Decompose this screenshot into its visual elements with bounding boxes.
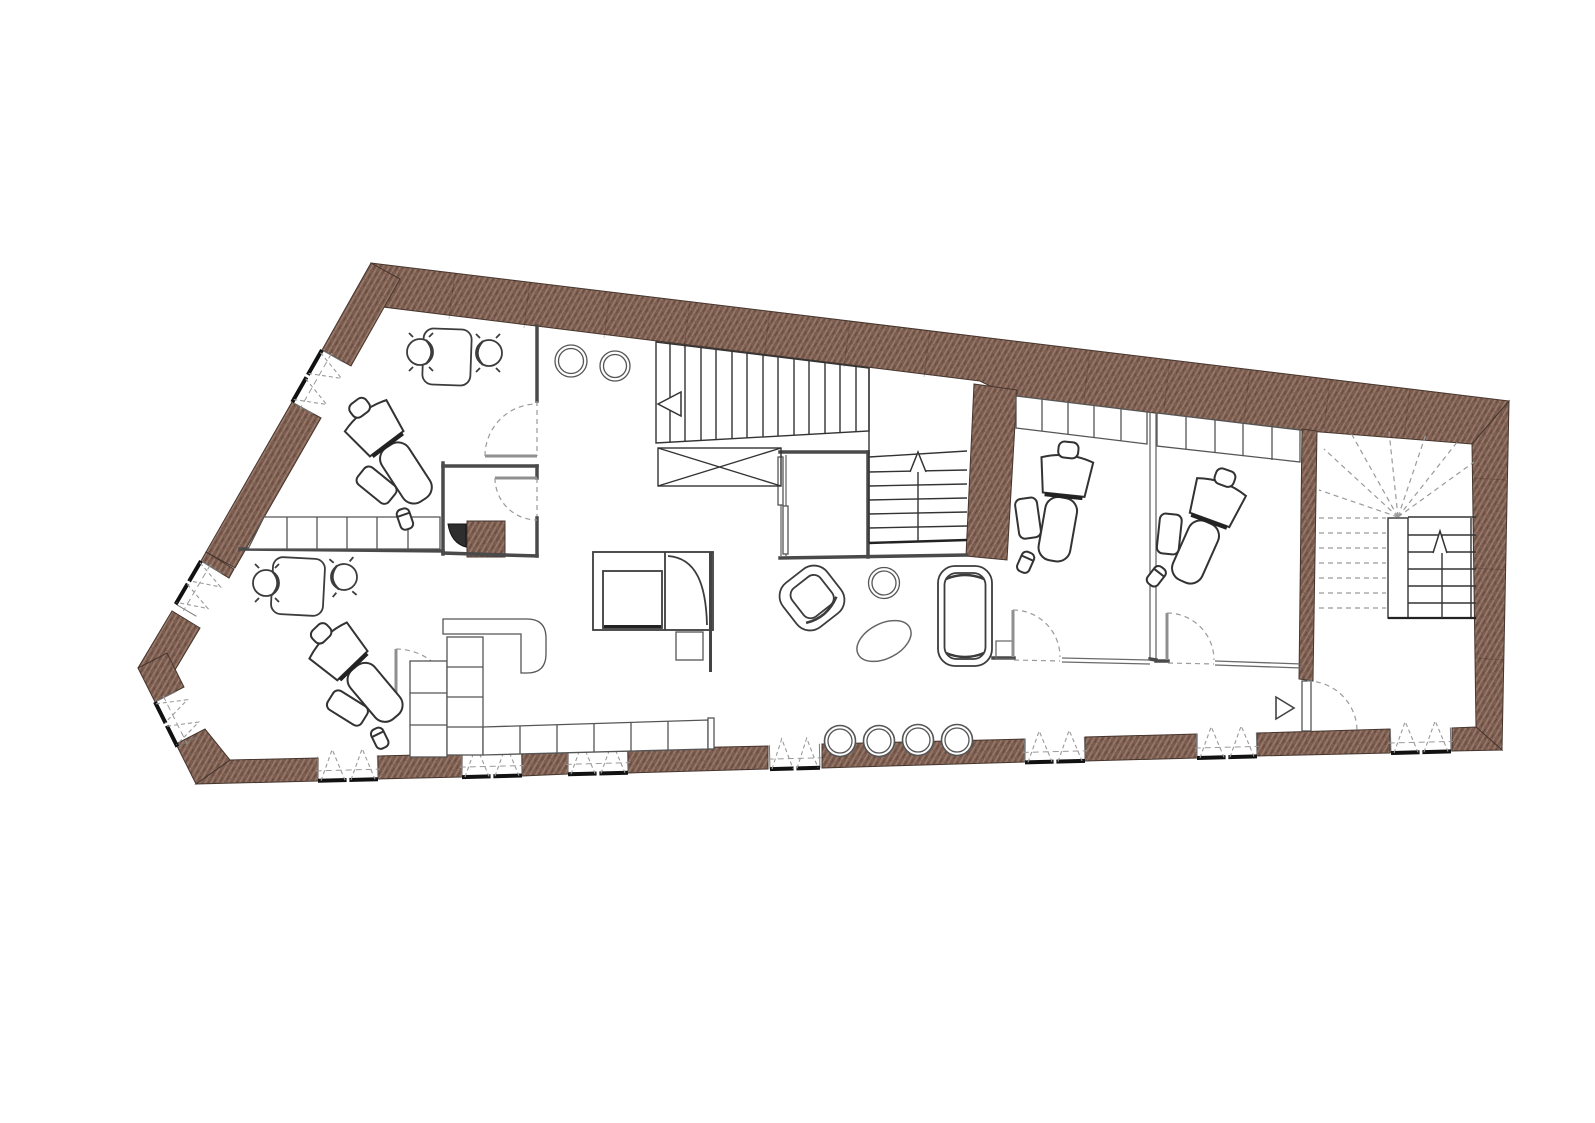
dental-chair [281, 610, 429, 760]
wall-north [371, 263, 1509, 444]
dental-chair [1007, 437, 1095, 580]
wall-northwest-1 [322, 263, 400, 366]
play-booth [593, 552, 713, 672]
cabinet-run-south [483, 718, 714, 755]
wall-stairroom-west [1299, 429, 1317, 681]
closet-door-panel [783, 506, 788, 554]
duct-shaft [467, 521, 505, 557]
task-chair [476, 334, 502, 372]
wall-south-2 [378, 754, 462, 779]
window [315, 748, 380, 783]
wall-east [1472, 401, 1509, 750]
winder-fan-lines [1319, 431, 1474, 517]
round-table [600, 351, 630, 381]
wall-pier [966, 384, 1017, 560]
entrance-direction-triangle [1276, 697, 1294, 719]
window [1388, 720, 1453, 755]
square-table [676, 632, 703, 660]
door-treatment-2 [1167, 613, 1214, 664]
wall-south-6 [1085, 734, 1197, 761]
stair-flight-right [869, 451, 967, 543]
round-stool [903, 725, 934, 756]
task-chair [329, 557, 358, 597]
winder-dashed-treads [1319, 518, 1386, 608]
cabinet-column-1 [410, 661, 447, 757]
round-stool [942, 725, 973, 756]
round-stool [864, 726, 895, 757]
round-table [555, 345, 587, 377]
wc-sink [448, 524, 466, 547]
sofa [938, 566, 992, 666]
round-side-table [869, 568, 900, 599]
window [767, 738, 822, 772]
cabinet-column-2 [447, 637, 483, 755]
door-stair-room [1302, 681, 1357, 731]
window [1022, 730, 1087, 765]
floor-plan-drawing [0, 0, 1595, 1123]
round-stool [825, 726, 856, 757]
winder-staircase [1319, 431, 1476, 618]
oval-rug [850, 612, 918, 670]
door-treatment-1 [1013, 610, 1060, 661]
stair-void-box [658, 448, 781, 486]
dental-chair [316, 386, 457, 540]
wall-south-3 [522, 751, 568, 776]
door-wc [495, 478, 537, 520]
doors [396, 404, 1357, 731]
window [1194, 725, 1259, 760]
armchair [773, 559, 852, 638]
dental-chair [1136, 454, 1253, 607]
door-office-nw [485, 404, 537, 456]
wall-south-7 [1257, 729, 1390, 756]
floor-plan-page [0, 0, 1595, 1123]
